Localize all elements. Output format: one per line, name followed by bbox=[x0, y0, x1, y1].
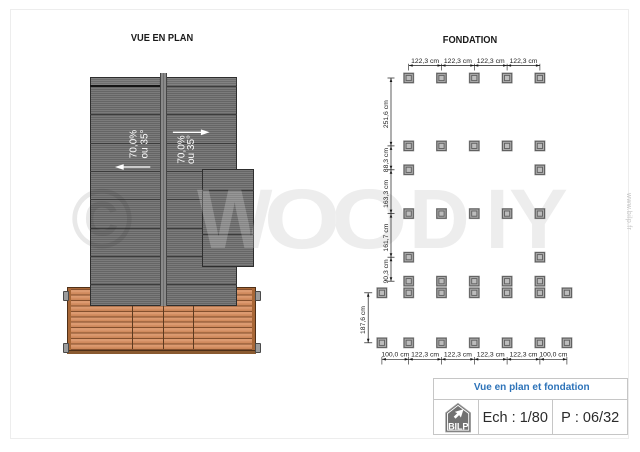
svg-text:163,3 cm: 163,3 cm bbox=[383, 180, 390, 208]
svg-text:100,0 cm: 100,0 cm bbox=[381, 352, 409, 359]
svg-text:122,3 cm: 122,3 cm bbox=[477, 58, 505, 65]
svg-text:100,0 cm: 100,0 cm bbox=[539, 352, 567, 359]
svg-text:ou 35°: ou 35° bbox=[139, 129, 150, 158]
svg-text:122,3 cm: 122,3 cm bbox=[477, 352, 505, 359]
svg-text:161,7 cm: 161,7 cm bbox=[383, 223, 390, 251]
svg-text:122,3 cm: 122,3 cm bbox=[510, 58, 538, 65]
svg-text:90,3 cm: 90,3 cm bbox=[383, 259, 390, 284]
svg-text:122,3 cm: 122,3 cm bbox=[411, 352, 439, 359]
svg-text:BILP: BILP bbox=[448, 421, 468, 431]
svg-text:70,0%: 70,0% bbox=[129, 130, 140, 158]
svg-text:122,3 cm: 122,3 cm bbox=[510, 352, 538, 359]
svg-text:88,3 cm: 88,3 cm bbox=[383, 148, 390, 173]
svg-text:122,3 cm: 122,3 cm bbox=[444, 58, 472, 65]
svg-text:251,6 cm: 251,6 cm bbox=[383, 100, 390, 128]
svg-text:ou 35°: ou 35° bbox=[186, 135, 197, 164]
svg-text:122,3 cm: 122,3 cm bbox=[444, 352, 472, 359]
svg-text:187,6 cm: 187,6 cm bbox=[360, 306, 367, 334]
svg-text:122,3 cm: 122,3 cm bbox=[411, 58, 439, 65]
